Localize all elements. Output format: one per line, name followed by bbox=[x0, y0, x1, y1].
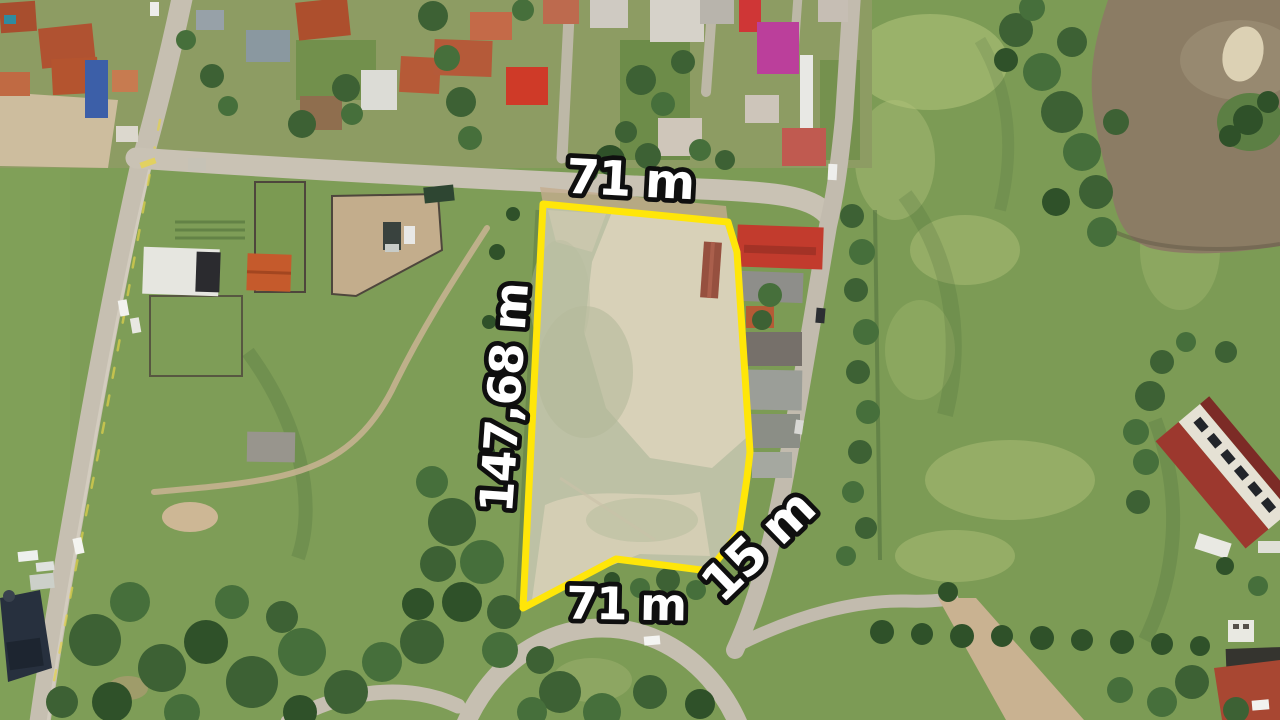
trees-shape bbox=[362, 642, 402, 682]
trees-shape bbox=[1257, 91, 1279, 113]
trees-shape bbox=[446, 87, 476, 117]
trees-shape bbox=[215, 585, 249, 619]
houses-shape bbox=[590, 0, 628, 28]
trees-shape bbox=[110, 582, 150, 622]
houses-shape bbox=[782, 128, 826, 166]
trees-shape bbox=[1087, 217, 1117, 247]
houses-shape bbox=[85, 60, 108, 118]
yards-and-sheds-shape bbox=[1243, 624, 1249, 629]
houses-shape bbox=[757, 22, 799, 74]
yards-and-sheds-shape bbox=[195, 252, 220, 293]
measurement-label-top-edge: 71 m bbox=[565, 149, 695, 212]
trees-shape bbox=[715, 150, 735, 170]
yards-and-sheds-shape bbox=[18, 550, 39, 562]
houses-shape bbox=[650, 0, 704, 42]
trees-shape bbox=[911, 623, 933, 645]
trees-shape bbox=[1123, 419, 1149, 445]
buildings-east-of-plot-shape bbox=[752, 452, 792, 478]
trees-shape bbox=[1023, 53, 1061, 91]
trees-shape bbox=[1215, 341, 1237, 363]
trees-shape bbox=[138, 644, 186, 692]
houses-shape bbox=[116, 126, 138, 142]
trees-shape bbox=[1150, 350, 1174, 374]
terrain-shape bbox=[162, 502, 218, 532]
trees-shape bbox=[846, 360, 870, 384]
cars-shape bbox=[828, 164, 838, 180]
yards-and-sheds-shape bbox=[423, 184, 455, 203]
trees-shape bbox=[460, 540, 504, 584]
trees-shape bbox=[1175, 665, 1209, 699]
trees-shape bbox=[615, 121, 637, 143]
trees-shape bbox=[1133, 449, 1159, 475]
trees-shape bbox=[402, 588, 434, 620]
houses-shape bbox=[295, 0, 351, 41]
trees-shape bbox=[1110, 630, 1134, 654]
trees-shape bbox=[506, 207, 520, 221]
trees-shape bbox=[633, 675, 667, 709]
trees-shape bbox=[1079, 175, 1113, 209]
trees-shape bbox=[226, 656, 278, 708]
trees-shape bbox=[416, 466, 448, 498]
trees-shape bbox=[1042, 188, 1070, 216]
houses-shape bbox=[4, 15, 16, 24]
trees-shape bbox=[489, 244, 505, 260]
trees-shape bbox=[651, 92, 675, 116]
trees-shape bbox=[1219, 125, 1241, 147]
houses-shape bbox=[543, 0, 579, 24]
trees-shape bbox=[46, 686, 78, 718]
trees-shape bbox=[1151, 633, 1173, 655]
trees-shape bbox=[1041, 91, 1083, 133]
trees-shape bbox=[853, 319, 879, 345]
trees-shape bbox=[1126, 490, 1150, 514]
trees-shape bbox=[994, 48, 1018, 72]
trees-shape bbox=[332, 74, 360, 102]
trees-shape bbox=[184, 620, 228, 664]
trees-shape bbox=[626, 65, 656, 95]
trees-shape bbox=[400, 620, 444, 664]
houses-shape bbox=[0, 72, 30, 96]
trees-shape bbox=[671, 50, 695, 74]
houses-shape bbox=[745, 95, 779, 123]
trees-shape bbox=[1103, 109, 1129, 135]
houses-shape bbox=[361, 70, 397, 110]
trees-shape bbox=[420, 546, 456, 582]
trees-shape bbox=[856, 400, 880, 424]
terrain-shape bbox=[895, 530, 1015, 582]
buildings-east-of-plot-shape bbox=[748, 414, 800, 448]
trees-shape bbox=[1107, 677, 1133, 703]
yards-and-sheds-shape bbox=[29, 573, 54, 590]
trees-shape bbox=[266, 601, 298, 633]
trees-shape bbox=[512, 0, 534, 21]
yards-and-sheds-shape bbox=[3, 590, 15, 602]
yards-and-sheds-shape bbox=[385, 244, 399, 252]
trees-shape bbox=[1135, 381, 1165, 411]
trees-shape bbox=[991, 625, 1013, 647]
terrain-shape bbox=[925, 440, 1095, 520]
cars-shape bbox=[644, 635, 661, 645]
terrain-shape bbox=[852, 14, 1008, 110]
trees-shape bbox=[278, 628, 326, 676]
trees-shape bbox=[458, 126, 482, 150]
trees-shape bbox=[1057, 27, 1087, 57]
palm-tree bbox=[1216, 557, 1234, 575]
trees-shape bbox=[434, 45, 460, 71]
aerial-screenshot: 71 m 147,68 m 15 m 71 m bbox=[0, 0, 1280, 720]
trees-shape bbox=[341, 103, 363, 125]
trees-shape bbox=[848, 440, 872, 464]
houses-shape bbox=[700, 0, 734, 24]
trees-shape bbox=[442, 582, 482, 622]
houses-shape bbox=[470, 12, 512, 40]
yards-and-sheds-shape bbox=[188, 158, 206, 171]
aerial-photo: 71 m 147,68 m 15 m 71 m bbox=[0, 0, 1280, 720]
trees-shape bbox=[176, 30, 196, 50]
houses-shape bbox=[800, 55, 813, 131]
trees-shape bbox=[870, 620, 894, 644]
trees-shape bbox=[842, 481, 864, 503]
houses-shape bbox=[506, 67, 548, 105]
yards-and-sheds-shape bbox=[247, 432, 296, 463]
cars-shape bbox=[815, 308, 825, 324]
trees-shape bbox=[526, 646, 554, 674]
yards-and-sheds-shape bbox=[1258, 541, 1280, 553]
trees-shape bbox=[1147, 687, 1177, 717]
yards-and-sheds-shape bbox=[1252, 699, 1270, 710]
yards-and-sheds-shape bbox=[1228, 620, 1254, 642]
trees-shape bbox=[1248, 576, 1268, 596]
yards-and-sheds-shape bbox=[36, 561, 55, 572]
buildings-east-of-plot-shape bbox=[742, 332, 802, 366]
trees-shape bbox=[218, 96, 238, 116]
yards-and-sheds-shape bbox=[6, 638, 44, 670]
houses-shape bbox=[246, 30, 290, 62]
trees-shape bbox=[752, 310, 772, 330]
trees-shape bbox=[1190, 636, 1210, 656]
yards-and-sheds-shape bbox=[1233, 624, 1239, 629]
palm-tree bbox=[938, 582, 958, 602]
trees-shape bbox=[950, 624, 974, 648]
trees-shape bbox=[1071, 629, 1093, 651]
trees-shape bbox=[69, 614, 121, 666]
trees-shape bbox=[288, 110, 316, 138]
trees-shape bbox=[200, 64, 224, 88]
trees-shape bbox=[487, 595, 521, 629]
trees-shape bbox=[840, 204, 864, 228]
buildings-east-of-plot-shape bbox=[744, 369, 803, 410]
trees-shape bbox=[849, 239, 875, 265]
measurement-label-bottom-edge: 71 m bbox=[566, 576, 686, 631]
trees-shape bbox=[685, 689, 715, 719]
cars-shape bbox=[150, 2, 159, 16]
trees-shape bbox=[1063, 133, 1101, 171]
trees-shape bbox=[324, 670, 368, 714]
trees-shape bbox=[482, 632, 518, 668]
houses-shape bbox=[818, 0, 848, 22]
trees-shape bbox=[418, 1, 448, 31]
trees-shape bbox=[758, 283, 782, 307]
trees-shape bbox=[855, 517, 877, 539]
trees-shape bbox=[1176, 332, 1196, 352]
trees-shape bbox=[836, 546, 856, 566]
houses-shape bbox=[196, 10, 224, 30]
trees-shape bbox=[844, 278, 868, 302]
trees-shape bbox=[1030, 626, 1054, 650]
houses-shape bbox=[112, 70, 138, 92]
yards-and-sheds-shape bbox=[404, 226, 415, 244]
